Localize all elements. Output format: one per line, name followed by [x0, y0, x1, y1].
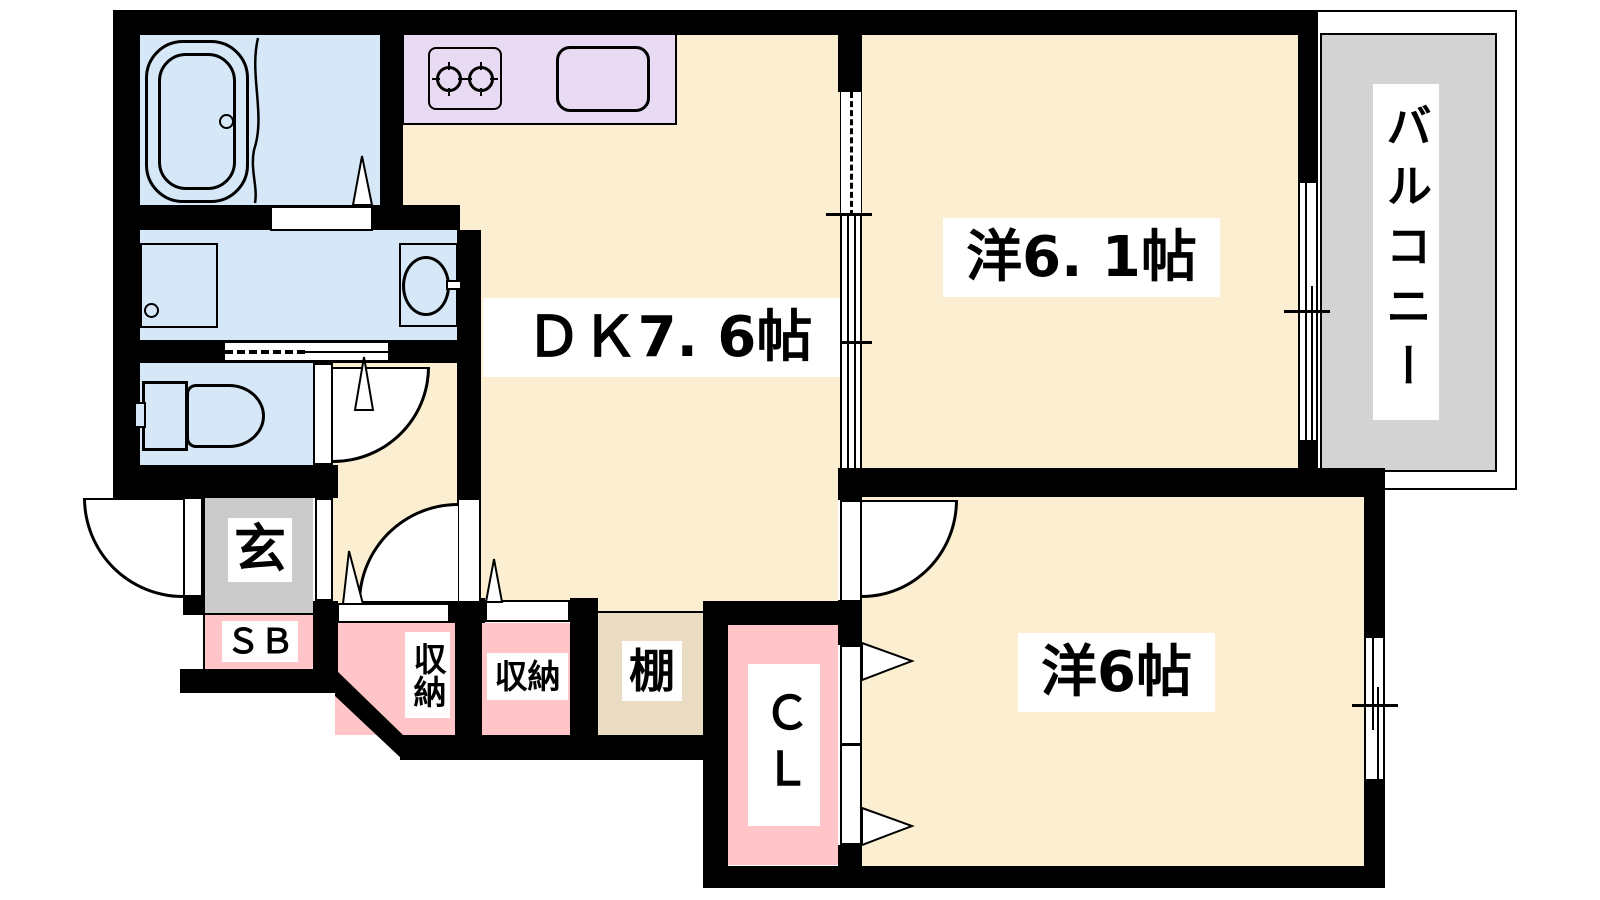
storage-left-door [337, 603, 450, 623]
western-6-1-label-text: 洋6. 1帖 [966, 230, 1197, 286]
entrance-label-text: 玄 [234, 524, 286, 576]
closet-label-text: ＣＬ [761, 689, 807, 801]
shoe-box-label-text: ＳＢ [226, 625, 294, 659]
toilet-bowl [186, 384, 265, 448]
wall-right-upper [1298, 10, 1318, 185]
washing-machine-drain [144, 303, 159, 318]
closet-label: ＣＬ [748, 664, 820, 826]
closet-fold-door-2 [840, 744, 862, 845]
wall-shelf-left [570, 598, 598, 735]
wall-shoebox-bottom [180, 669, 337, 693]
wall-divider-a [838, 35, 862, 92]
wall-top [113, 10, 1303, 35]
floor-plan: ＤＫ7. 6帖 洋6. 1帖 洋6帖 バルコニー 玄 ＳＢ 収納 収納 棚 ＣＬ [0, 0, 1600, 900]
dashed-partition-line [850, 92, 853, 216]
stove-burner-left [436, 66, 462, 92]
western6-window [1364, 638, 1385, 779]
storage-left-label: 収納 [405, 632, 450, 718]
shoe-box-label: ＳＢ [222, 621, 298, 662]
toilet-door-frame [313, 363, 333, 465]
wall-entrance-top [113, 465, 338, 498]
vanity-tap [446, 280, 462, 290]
washroom-passage [305, 341, 388, 362]
storage-right-door [485, 600, 570, 622]
storage-right-label: 収納 [487, 653, 568, 700]
western6-window-tick [1352, 704, 1398, 707]
wall-bottom [703, 866, 1385, 888]
wall-storage-bottom [400, 735, 710, 760]
entrance-label: 玄 [228, 518, 292, 582]
storage-right-label-text: 収納 [495, 660, 561, 693]
wall-right-mid [1298, 440, 1318, 468]
western-6-label-text: 洋6帖 [1041, 645, 1192, 701]
balcony-label-text: バルコニー [1383, 102, 1429, 402]
dk-room-label-text: ＤＫ7. 6帖 [526, 310, 813, 366]
western-6-label: 洋6帖 [1018, 633, 1215, 712]
wall-hall-dk [457, 230, 481, 498]
shelf-label: 棚 [622, 641, 682, 701]
wall-western6-top [838, 468, 1385, 497]
bathtub-drain [219, 114, 234, 129]
closet-fold-door-1 [840, 645, 862, 745]
bathroom-door-opening [270, 206, 373, 231]
slide-tick-2 [840, 341, 872, 344]
entry-door-frame [183, 497, 203, 597]
wall-storage-mid [455, 623, 482, 735]
accordion-opening [225, 341, 305, 362]
slide-tick-1 [826, 213, 872, 216]
western6-door-frame [840, 500, 862, 602]
wall-closet-left [703, 601, 728, 885]
dashed-partition [840, 92, 862, 216]
wall-divider-c [838, 600, 862, 645]
western6-window-line-2 [1377, 687, 1379, 779]
kitchen-sink [556, 46, 650, 112]
storage-left-label-text: 収納 [411, 642, 444, 708]
balcony-window-line-2 [1311, 286, 1313, 440]
wall-entry-jamb [183, 595, 203, 615]
western6-window-line-1 [1372, 638, 1374, 730]
wall-entrance-right [313, 601, 338, 672]
stove-burner-right [468, 66, 494, 92]
shelf-label-text: 棚 [629, 648, 675, 694]
balcony-window-tick [1284, 310, 1330, 313]
entry-door-swing [83, 498, 183, 598]
hall-door-leaf [457, 498, 481, 603]
toilet-handle [134, 402, 146, 428]
western-6-1-label: 洋6. 1帖 [943, 218, 1220, 297]
wall-closet-top [707, 601, 838, 625]
wall-bathroom-right [380, 10, 403, 230]
dk-room-label: ＤＫ7. 6帖 [483, 298, 855, 377]
balcony-label: バルコニー [1373, 84, 1439, 420]
vanity-sink [402, 256, 450, 316]
entrance-passage [315, 498, 333, 601]
toilet-tank [142, 381, 188, 451]
